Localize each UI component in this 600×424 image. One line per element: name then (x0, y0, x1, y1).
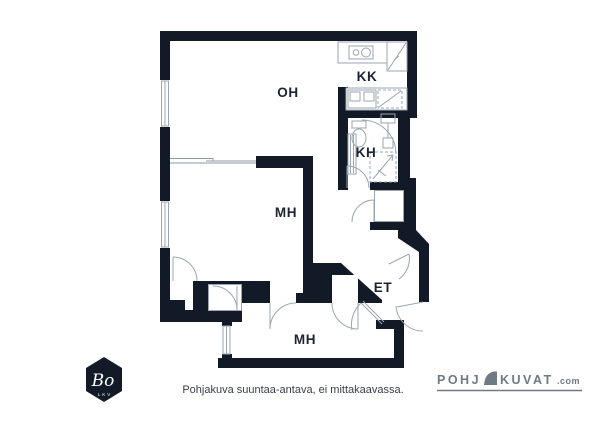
wall-step-bottom (160, 310, 242, 322)
closet-et-floor (374, 190, 404, 222)
door-closet-et-icon (352, 200, 374, 222)
pohjakuvat-logo: POHJ KUVAT .com (437, 372, 582, 391)
floorplan-canvas: OH KK KH MH ET MH Pohjakuva suuntaa-anta… (0, 0, 600, 424)
window-mh1-icon (162, 202, 169, 247)
floorplan-page: OH KK KH MH ET MH Pohjakuva suuntaa-anta… (0, 0, 600, 424)
pohjakuvat-stair-icon (484, 372, 497, 386)
room-label-mh2: MH (294, 332, 316, 347)
counter-top-icon (338, 42, 387, 63)
counter-low-icon (346, 88, 407, 110)
wall-mh-right (303, 156, 313, 281)
caption-text: Pohjakuva suuntaa-antava, ei mittakaavas… (182, 384, 403, 396)
door1-opening (270, 281, 296, 303)
wall-kh-top (338, 110, 410, 118)
wall-mh2-left-top (222, 322, 232, 326)
pohjakuvat-suffix: .com (557, 376, 580, 386)
wall-right-kk (407, 31, 417, 118)
room-label-kk: KK (357, 69, 378, 84)
wall-right-et (419, 244, 429, 302)
wall-step-nook (170, 300, 185, 310)
pohjakuvat-part1: POHJ (437, 373, 481, 387)
room-label-kh: KH (356, 145, 377, 160)
wall-top (160, 31, 417, 41)
room-label-et: ET (374, 280, 393, 295)
door-mh1-nook-icon (173, 257, 197, 281)
wall-left-3 (160, 248, 170, 310)
wall-left-1 (160, 41, 170, 80)
wall-mh2-right (394, 321, 404, 368)
fridge-icon (387, 42, 407, 71)
pohjakuvat-part2: KUVAT (500, 373, 554, 387)
room-label-oh: OH (277, 85, 298, 100)
door-mh2-right-icon (332, 303, 358, 329)
wall-kh-bottom (370, 182, 416, 190)
wall-mh2-bottom (218, 358, 404, 368)
window-oh-icon (162, 81, 169, 126)
wall-band-mid (242, 293, 270, 303)
room-label-mh1: MH (275, 205, 297, 220)
bo-logo-name: Bo (91, 371, 115, 391)
bo-lkv-logo: Bo LKV (86, 357, 122, 402)
door-mh2-left-icon (270, 303, 296, 329)
door2-opening (332, 275, 358, 303)
partition-oh-mh (170, 159, 256, 164)
wall-left-2 (160, 127, 170, 201)
wall-closet-bottom (370, 222, 416, 230)
wall-right-kh (398, 110, 410, 182)
window-mh2-icon (223, 326, 230, 354)
bo-logo-sub: LKV (98, 392, 113, 397)
bathroom-sink-icon (381, 114, 395, 148)
door-et-diagonal-icon (389, 254, 409, 279)
